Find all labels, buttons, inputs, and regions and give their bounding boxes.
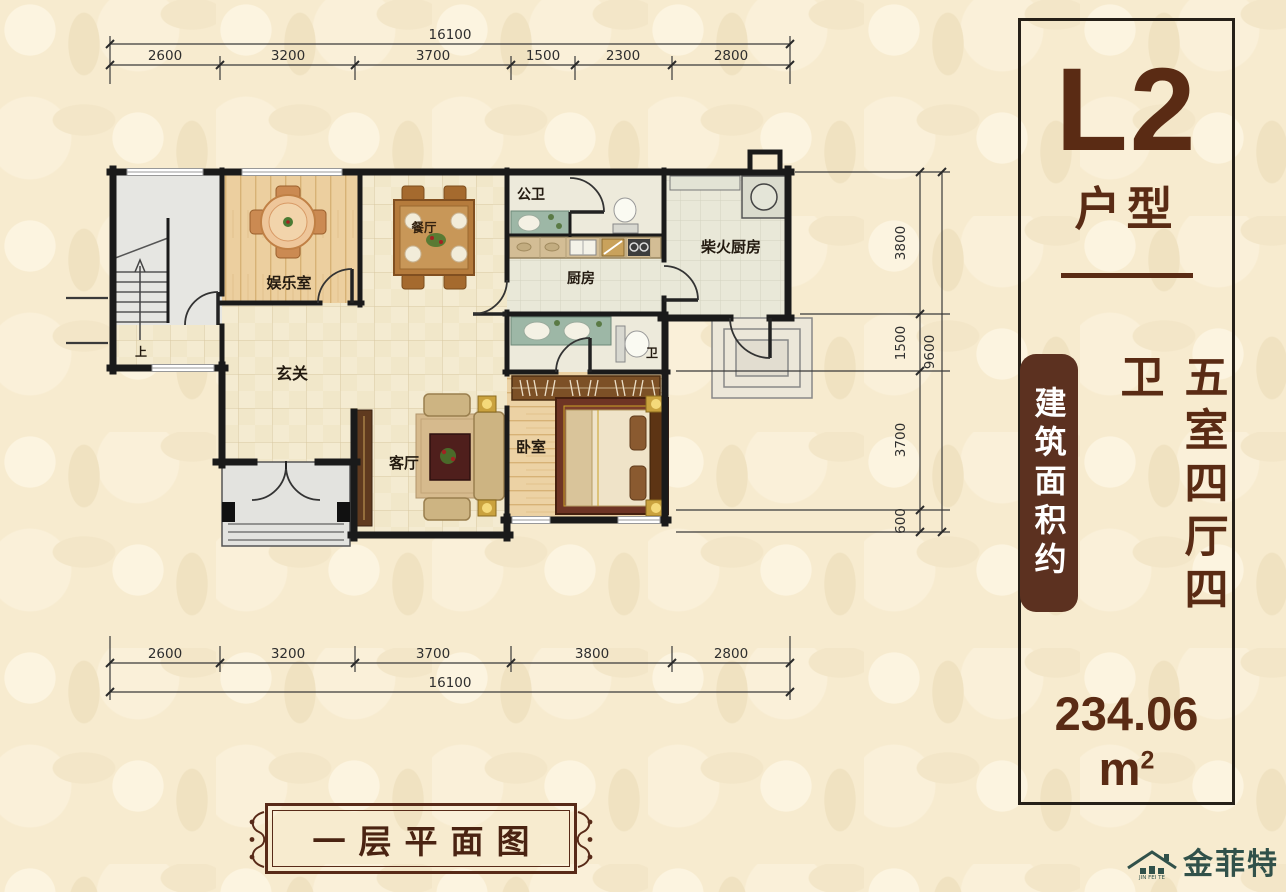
brand-latin: JIN FEI TE: [1138, 875, 1165, 880]
plan-caption: 一层平面图: [300, 815, 543, 863]
floor-plan-page: { "header": { "unit_code": "L2", "unit_t…: [0, 0, 1286, 892]
sofa-small: [424, 498, 470, 520]
area-row: 建筑面积约 五室四厅四卫: [1021, 354, 1232, 632]
dim-bottom-seg: 3200: [271, 646, 305, 662]
dim-top-total: 16100: [429, 27, 472, 43]
room-label-public-bath: 公卫: [517, 187, 545, 203]
area-prefix-badge: 建筑面积约: [1020, 354, 1078, 612]
unit-type-label: 户型: [1021, 173, 1232, 239]
room-label-hallway: 玄关: [276, 364, 308, 383]
chimney: [750, 152, 780, 172]
room-label-living: 客厅: [388, 454, 419, 472]
window: [127, 169, 203, 176]
entry-porch: [222, 462, 350, 546]
kitchen-counter: [509, 237, 661, 258]
room-label-bedroom: 卧室: [516, 438, 546, 456]
unit-code: L2: [1021, 51, 1232, 169]
sink-icon: [518, 215, 540, 231]
dim-top-seg: 3200: [271, 48, 305, 64]
dim-right-seg: 3800: [893, 226, 909, 260]
sofa-small: [424, 394, 470, 416]
room-label-dining: 餐厅: [410, 220, 437, 235]
frame-ornament-icon: [244, 804, 270, 875]
room-label-kitchen: 厨房: [567, 270, 595, 287]
room-label-stair-up: 上: [135, 344, 147, 359]
window: [242, 169, 342, 176]
dim-top-seg: 1500: [526, 48, 560, 64]
dim-right-seg: 3700: [893, 423, 909, 457]
dim-top-seg: 2300: [606, 48, 640, 64]
wardrobe: [512, 376, 660, 400]
plan-caption-frame: 一层平面图: [265, 803, 577, 874]
brand-logo: JIN FEI TE 金菲特: [1126, 846, 1279, 880]
dim-top-seg: 2800: [714, 48, 748, 64]
window: [152, 365, 214, 372]
brand-name: 金菲特: [1183, 850, 1279, 880]
area-value-line: 234.06 m2: [1021, 686, 1232, 796]
dining-table-set: [394, 186, 474, 289]
dim-right-total: 9600: [922, 335, 938, 369]
dim-top-seg: 2600: [148, 48, 182, 64]
dim-bottom-seg: 2600: [148, 646, 182, 662]
unit-title-panel: L2 户型 建筑面积约 五室四厅四卫 234.06 m2: [1018, 18, 1235, 805]
dim-top-seg: 3700: [416, 48, 450, 64]
floor-plan-drawing: 16100 2600 3200 3700 1500 2300 2800 2600…: [0, 0, 1000, 720]
room-label-bath: 卫: [646, 346, 658, 360]
stove-icon: [628, 239, 650, 256]
sofa-long: [474, 412, 504, 500]
bed-pillow: [630, 416, 646, 450]
area-unit: m: [1099, 742, 1141, 795]
dim-right-seg: 600: [893, 508, 909, 534]
window: [618, 517, 660, 524]
window: [512, 517, 550, 524]
room-label-entertainment: 娱乐室: [266, 274, 311, 292]
room-label-firewood-kitchen: 柴火厨房: [700, 238, 761, 256]
dim-right-seg: 1500: [893, 326, 909, 360]
bed-set: [556, 396, 668, 516]
dim-bottom-total: 16100: [429, 675, 472, 691]
porch-post-left: [222, 502, 235, 522]
toilet-icon: [614, 198, 636, 222]
bed-blanket: [566, 410, 592, 506]
area-value: 234.06: [1055, 687, 1199, 740]
porch-post-right: [337, 502, 350, 522]
frame-ornament-icon: [572, 804, 598, 875]
divider-rule: [1061, 273, 1193, 278]
bed-pillow: [630, 466, 646, 500]
house-roof-icon: JIN FEI TE: [1126, 846, 1178, 880]
dim-bottom-seg: 3800: [575, 646, 609, 662]
dim-bottom-seg: 3700: [416, 646, 450, 662]
dim-bottom-seg: 2800: [714, 646, 748, 662]
area-exponent: 2: [1140, 746, 1154, 774]
layout-summary: 五室四厅四卫: [1106, 354, 1234, 632]
